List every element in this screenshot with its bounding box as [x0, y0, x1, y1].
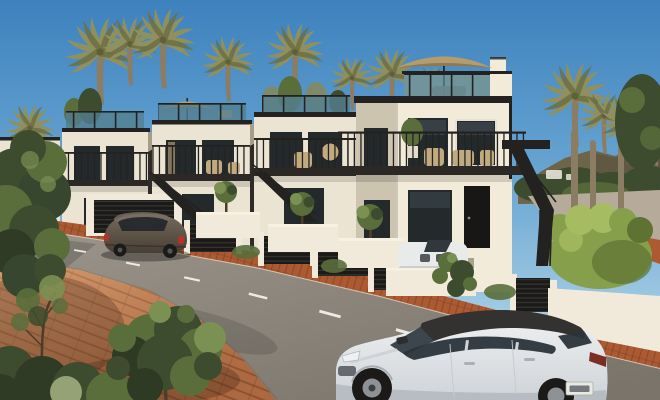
balcony-railing	[62, 153, 150, 180]
tail-light	[104, 234, 109, 241]
roof-terrace	[262, 95, 350, 114]
roof-terrace	[158, 103, 246, 121]
fence-panel	[516, 278, 550, 312]
balcony-slab	[336, 166, 526, 175]
balcony-slab	[60, 180, 152, 186]
balcony-railing	[152, 146, 252, 174]
left-tree	[0, 130, 71, 298]
entry-door	[464, 186, 490, 248]
tail-light	[178, 236, 184, 244]
distant-building	[546, 170, 562, 179]
render-image: Architectural render of a row of modern …	[0, 0, 660, 400]
balcony-railing	[338, 133, 526, 166]
scene-image: Architectural render of a row of modern …	[0, 0, 660, 400]
car-window	[118, 217, 168, 231]
balcony-slab	[150, 174, 254, 181]
license-plate	[566, 382, 593, 395]
